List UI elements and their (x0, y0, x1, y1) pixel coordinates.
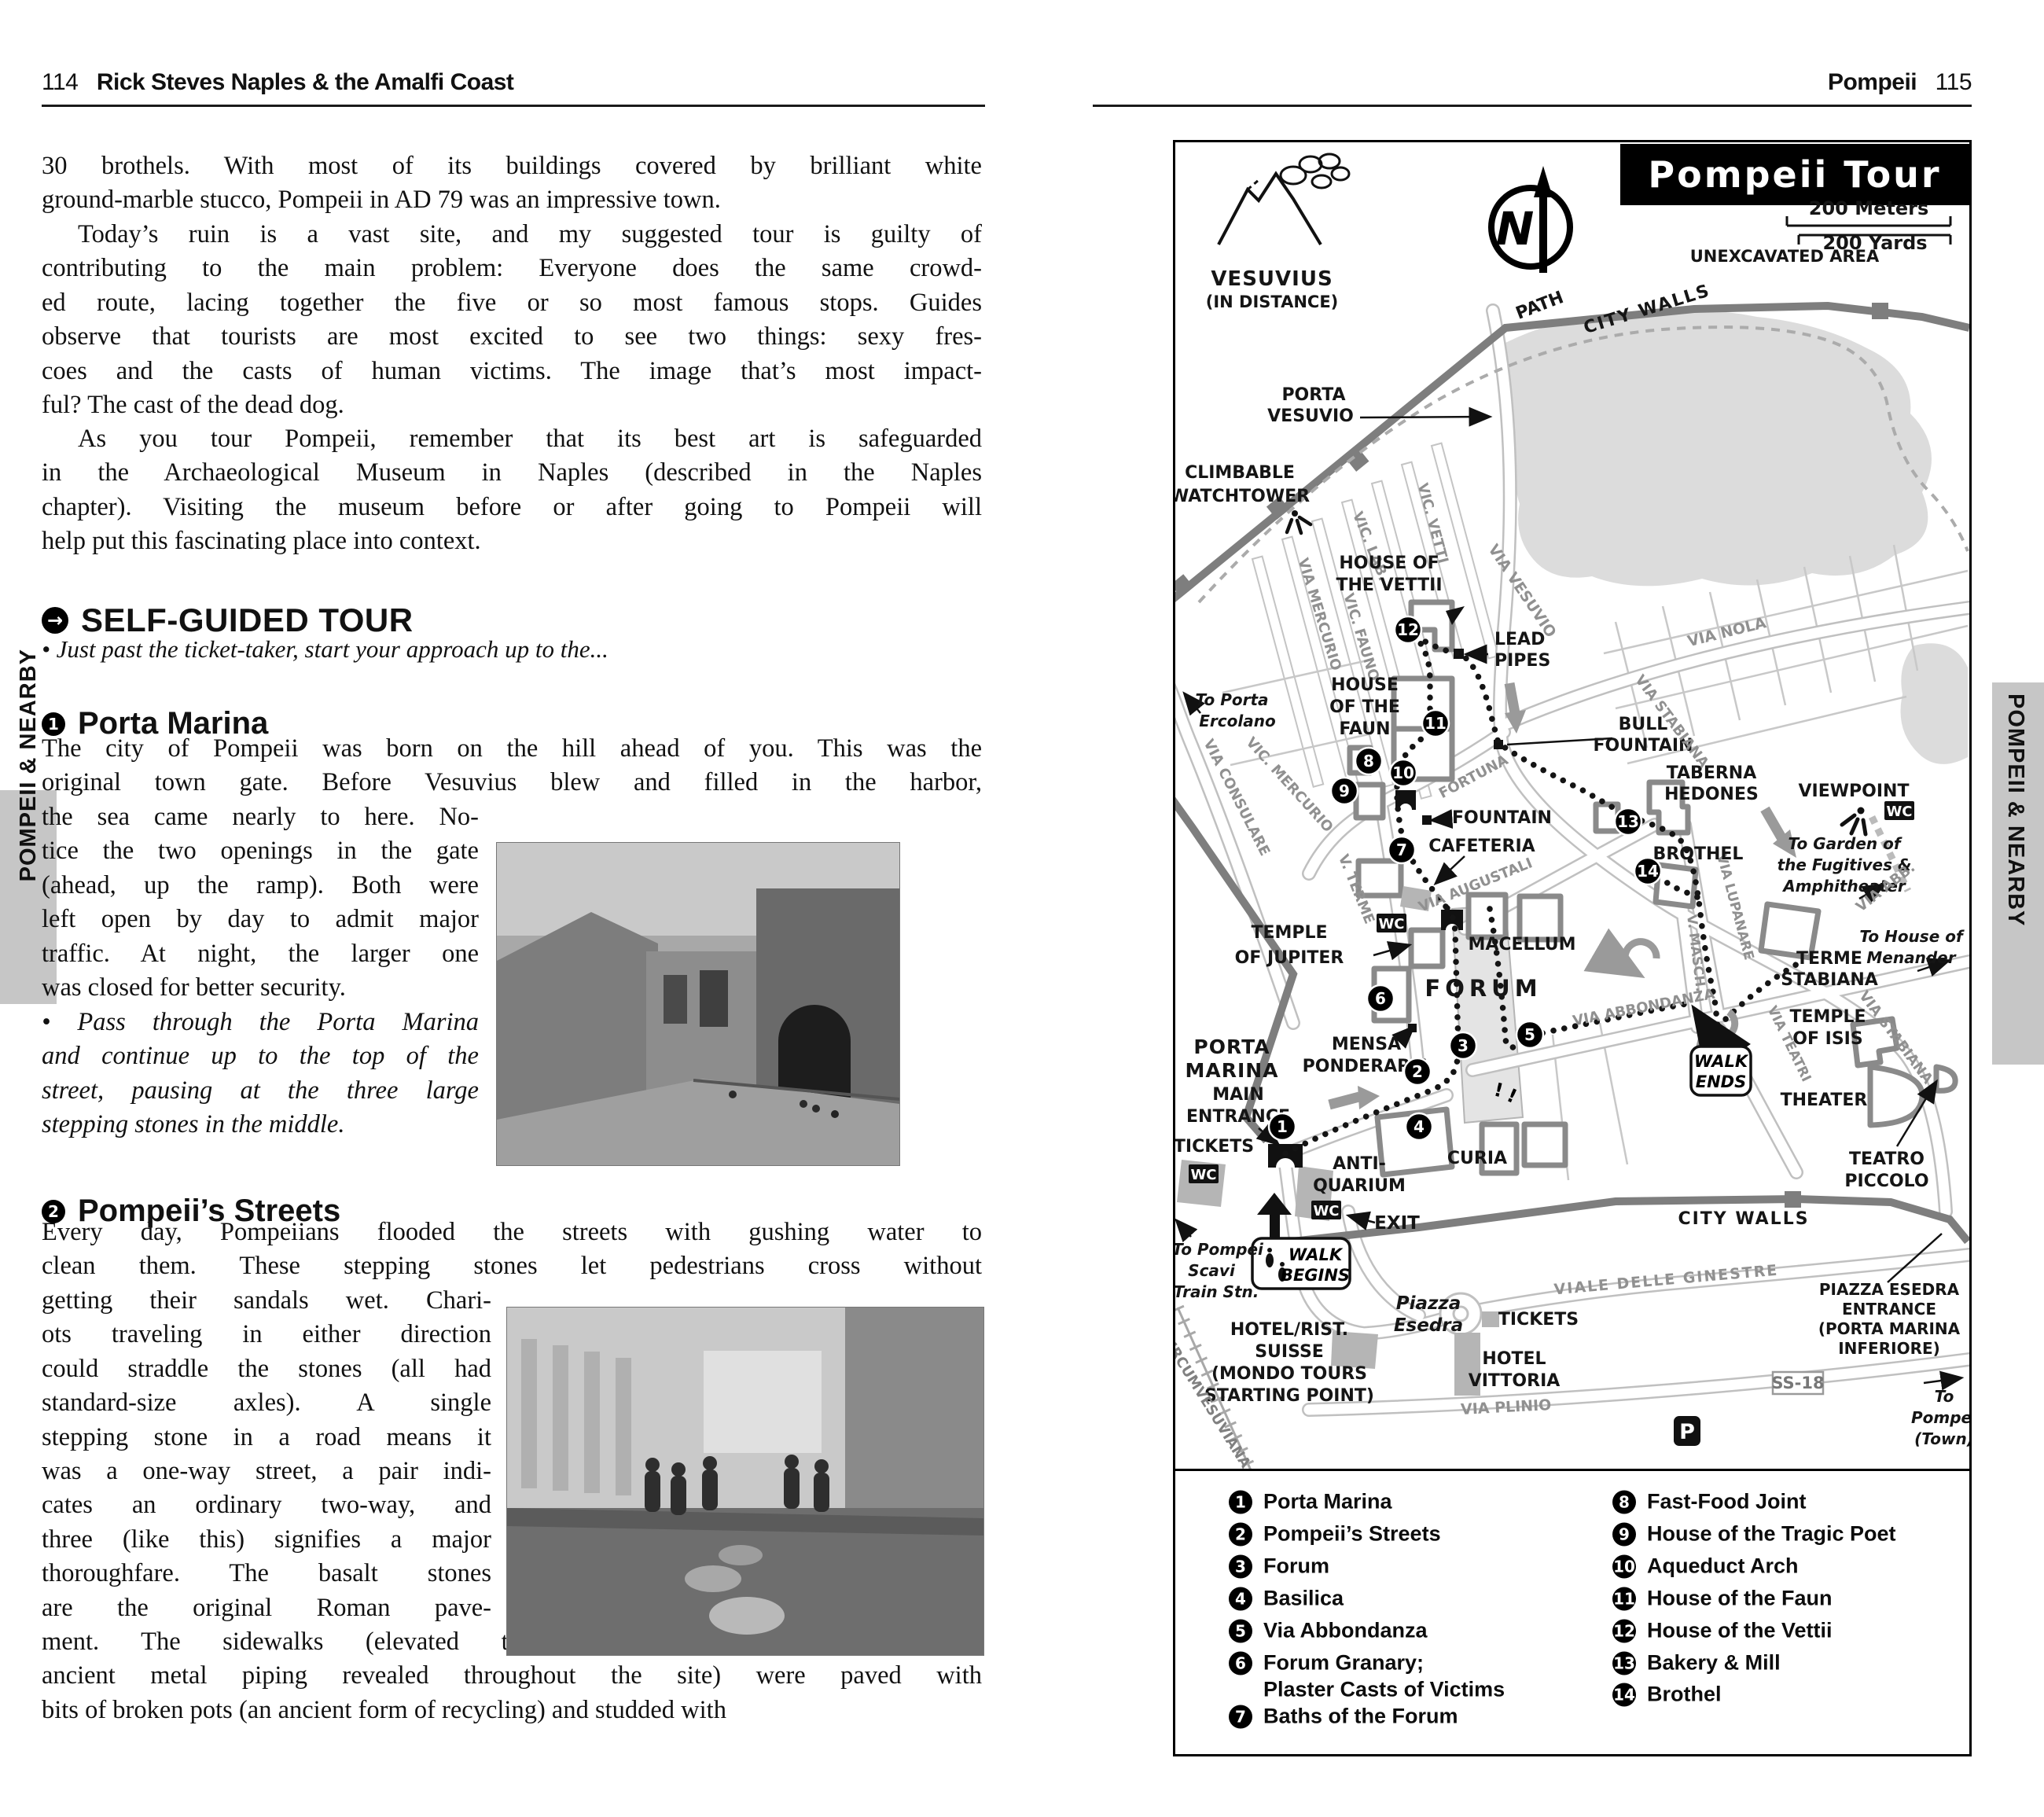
map-stop-badge-8: 8 (1355, 748, 1382, 774)
body-line: As you tour Pompeii, remember that its b… (42, 422, 982, 456)
body-line: could straddle the stones (all had (42, 1352, 491, 1386)
self-guided-tour-heading: → SELF-GUIDED TOUR (42, 601, 414, 639)
legend-number-badge: 9 (1612, 1522, 1636, 1546)
map-label: MENSA (1332, 1035, 1401, 1054)
legend-item-14: 14Brothel (1612, 1683, 1722, 1707)
body-line: original town gate. Before Vesuvius blew… (42, 766, 982, 800)
body-line: tice the two openings in the gate (42, 834, 479, 868)
legend-item-5: 5Via Abbondanza (1229, 1619, 1428, 1643)
body-line: ancient metal piping revealed throughout… (42, 1659, 982, 1693)
map-title: Pompeii Tour (1620, 144, 1969, 205)
map-stop-badge-11: 11 (1422, 710, 1449, 737)
map-label: PIPES (1494, 651, 1550, 671)
svg-text:10: 10 (1392, 763, 1414, 782)
map-label: TEMPLE (1251, 923, 1327, 943)
map-label: (IN DISTANCE) (1206, 292, 1339, 311)
map-label: OF THE (1329, 697, 1400, 717)
photo-stepping-stones-illustration (507, 1308, 983, 1655)
photo-porta-marina (497, 843, 899, 1165)
map-label: (Town) (1914, 1429, 1969, 1448)
svg-text:SS-18: SS-18 (1771, 1374, 1824, 1392)
map-label: ANTI- (1333, 1154, 1386, 1174)
svg-text:14: 14 (1637, 862, 1659, 881)
legend-label: Aqueduct Arch (1647, 1554, 1799, 1579)
map-label: VESUVIUS (1211, 267, 1333, 291)
svg-text:13: 13 (1617, 812, 1639, 831)
body-line: thoroughfare. The basalt stones (42, 1557, 491, 1591)
svg-text:WALK: WALK (1289, 1245, 1344, 1264)
map-label: Esedra (1394, 1315, 1463, 1336)
map-label: CURIA (1447, 1149, 1507, 1168)
body-line: Every day, Pompeiians flooded the street… (42, 1216, 982, 1249)
map-stop-badge-14: 14 (1634, 858, 1661, 885)
map-label: ENTRANCE (1842, 1300, 1936, 1319)
map-label: To Garden of (1788, 834, 1902, 853)
map-label: 200 Meters (1809, 197, 1928, 219)
right-page-number: 115 (1936, 69, 1972, 95)
map-label: Scavi (1188, 1261, 1236, 1280)
legend-label: Fast-Food Joint (1647, 1490, 1806, 1514)
legend-item-7: 7Baths of the Forum (1229, 1705, 1458, 1729)
map-label: PORTA (1193, 1035, 1270, 1058)
map-label: (MONDO TOURS (1211, 1364, 1367, 1384)
map-stop-badge-1: 1 (1269, 1113, 1296, 1140)
body-line: getting their sandals wet. Chari- (42, 1284, 491, 1318)
right-header-rule (1093, 105, 1972, 107)
fountain-marker (1422, 815, 1432, 825)
wc-badge: WC (1377, 914, 1406, 932)
body-line: left open by day to admit major (42, 903, 479, 936)
book-spread: 114 Rick Steves Naples & the Amalfi Coas… (0, 0, 2044, 1817)
map-label: Ercolano (1199, 712, 1276, 730)
legend-label: Baths of the Forum (1263, 1705, 1458, 1729)
svg-text:WC: WC (1886, 804, 1912, 820)
map-label: MACELLUM (1468, 935, 1575, 954)
paragraph: the sea came nearly to here. No-tice the… (42, 800, 479, 1005)
svg-text:P: P (1679, 1420, 1695, 1444)
legend-label: Basilica (1263, 1587, 1344, 1611)
photo-porta-marina-illustration (497, 843, 899, 1165)
legend-number-badge: 6 (1229, 1651, 1252, 1675)
svg-text:3: 3 (1458, 1036, 1469, 1055)
map-label: THEATER (1781, 1091, 1868, 1110)
body-line: bits of broken pots (an ancient form of … (42, 1694, 982, 1727)
map-label: WATCHTOWER (1175, 487, 1310, 506)
legend-item-9: 9House of the Tragic Poet (1612, 1522, 1896, 1547)
left-page-header: 114 Rick Steves Naples & the Amalfi Coas… (42, 69, 513, 96)
left-tab-label: POMPEII & NEARBY (16, 649, 42, 881)
map-stop-badge-12: 12 (1395, 616, 1421, 643)
body-line: clean them. These stepping stones let pe… (42, 1249, 982, 1283)
vesuvius-icon (1219, 154, 1349, 245)
svg-text:7: 7 (1396, 840, 1407, 859)
map-label: HOUSE OF (1339, 554, 1439, 573)
map-frame: ! ! (1173, 140, 1972, 1756)
map-label: Train Stn. (1175, 1282, 1259, 1301)
map-label: VIA PLINIO (1461, 1396, 1552, 1418)
legend-label: Forum Granary; (1263, 1651, 1424, 1675)
map-stop-badge-5: 5 (1516, 1021, 1543, 1048)
legend-label-line2: Plaster Casts of Victims (1263, 1678, 1505, 1702)
body-line: ground-marble stucco, Pompeii in AD 79 w… (42, 183, 982, 217)
legend-number-badge: 12 (1612, 1619, 1636, 1642)
map-label: TICKETS (1175, 1137, 1254, 1157)
legend-item-6: 6Forum Granary; (1229, 1651, 1424, 1675)
map-label: To House of (1859, 927, 1965, 946)
paragraph: getting their sandals wet. Chari-ots tra… (42, 1284, 491, 1625)
map-label: VIEWPOINT (1799, 782, 1910, 801)
legend-item-2: 2Pompeii’s Streets (1229, 1522, 1441, 1547)
body-line: observe that tourists are most excited t… (42, 320, 982, 354)
svg-text:1: 1 (1277, 1117, 1288, 1136)
right-page-header: Pompeii 115 (1093, 69, 1972, 96)
legend-item-4: 4Basilica (1229, 1587, 1344, 1611)
map-label: the Fugitives & (1777, 855, 1912, 874)
body-line: was closed for better security. (42, 971, 479, 1005)
left-page-number: 114 (42, 69, 78, 95)
svg-text:BEGINS: BEGINS (1281, 1266, 1350, 1285)
map-label: HOTEL (1482, 1349, 1546, 1369)
map-label: FORUM (1425, 975, 1542, 1002)
body-line: chapter). Visiting the museum before or … (42, 491, 982, 524)
legend-number-badge: 5 (1229, 1619, 1252, 1642)
wc-badge: WC (1189, 1164, 1219, 1183)
map-label: TICKETS (1498, 1310, 1579, 1330)
map-stop-badge-9: 9 (1331, 778, 1358, 804)
legend-label: Porta Marina (1263, 1490, 1392, 1514)
body-line: ed route, lacing together the five or so… (42, 286, 982, 320)
map-label: UNEXCAVATED AREA (1690, 247, 1880, 266)
map-stop-badge-13: 13 (1615, 808, 1641, 835)
map-label: Pompei (1911, 1408, 1969, 1427)
map-label: THE VETTII (1336, 576, 1442, 595)
svg-text:WALK: WALK (1694, 1052, 1749, 1071)
map-stop-badge-2: 2 (1404, 1058, 1431, 1085)
legend-label: Via Abbondanza (1263, 1619, 1428, 1643)
map-label: To (1935, 1387, 1954, 1406)
legend-number-badge: 7 (1229, 1705, 1252, 1728)
map-label: VESUVIO (1267, 406, 1354, 426)
body-line: in the Archaeological Museum in Naples (… (42, 456, 982, 490)
legend-number-badge: 13 (1612, 1651, 1636, 1675)
arrow-circle-icon: → (42, 607, 68, 634)
ss18-badge: SS-18 (1771, 1372, 1824, 1394)
map-label: LEAD (1494, 630, 1545, 649)
tour-heading-label: SELF-GUIDED TOUR (81, 601, 414, 639)
map-label: SUISSE (1255, 1342, 1324, 1362)
tour-intro: • Just past the ticket-taker, start your… (42, 635, 982, 664)
legend-item-12: 12House of the Vettii (1612, 1619, 1833, 1643)
right-tab-label: POMPEII & NEARBY (2002, 693, 2028, 926)
map-stop-badge-6: 6 (1367, 985, 1394, 1012)
svg-text:9: 9 (1339, 782, 1350, 800)
legend-item-8: 8Fast-Food Joint (1612, 1490, 1806, 1514)
map-label: MAIN (1212, 1085, 1264, 1105)
legend-item-3: 3Forum (1229, 1554, 1329, 1579)
map-label: PORTA (1281, 385, 1345, 405)
body-line: coes and the casts of human victims. The… (42, 355, 982, 388)
map-label: PIAZZA ESEDRA (1819, 1280, 1960, 1299)
legend-number-badge: 14 (1612, 1683, 1636, 1706)
body-line: the sea came nearly to here. No- (42, 800, 479, 834)
map-label: HEDONES (1664, 785, 1759, 804)
map-label: To Porta (1195, 690, 1268, 709)
map-label: TEMPLE (1789, 1007, 1866, 1027)
paragraph: 30 brothels. With most of its buildings … (42, 149, 982, 218)
legend-label: House of the Vettii (1647, 1619, 1833, 1643)
body-line: The city of Pompeii was born on the hill… (42, 732, 982, 766)
map-label: STABIANA (1781, 970, 1878, 990)
map-label: STARTING POINT) (1204, 1386, 1374, 1406)
map-label: MARINA (1185, 1059, 1278, 1082)
svg-text:2: 2 (1412, 1062, 1423, 1081)
body-line: was a one-way street, a pair indi- (42, 1455, 491, 1488)
svg-text:4: 4 (1414, 1117, 1425, 1136)
body-line: street, pausing at the three large (42, 1074, 479, 1108)
map-label: Piazza (1396, 1293, 1461, 1314)
svg-text:11: 11 (1425, 714, 1447, 733)
body-line: ful? The cast of the dead dog. (42, 388, 982, 422)
body-line: cates an ordinary two-way, and (42, 1488, 491, 1522)
map-label: INFERIORE) (1838, 1339, 1940, 1358)
walk-begins-box: WALK BEGINS (1252, 1238, 1350, 1289)
svg-text:WC: WC (1313, 1203, 1339, 1219)
map-label: TEATRO (1849, 1149, 1925, 1169)
map-label: HOUSE (1331, 675, 1399, 695)
left-header-rule (42, 105, 985, 107)
map-stop-badge-10: 10 (1390, 760, 1417, 786)
map-label: CAFETERIA (1428, 837, 1535, 856)
body-line: contributing to the main problem: Everyo… (42, 252, 982, 285)
body-line: 30 brothels. With most of its buildings … (42, 149, 982, 183)
legend-label: Bakery & Mill (1647, 1651, 1781, 1675)
walk-ends-box: WALK ENDS (1691, 1046, 1751, 1095)
map-stop-badge-7: 7 (1388, 837, 1415, 863)
right-header-title: Pompeii (1828, 69, 1917, 95)
map-label: CITY WALLS (1678, 1209, 1809, 1229)
legend-number-badge: 11 (1612, 1587, 1636, 1610)
map-label: (PORTA MARINA (1818, 1319, 1961, 1338)
body-line: help put this fascinating place into con… (42, 524, 982, 558)
map-label: FAUN (1339, 719, 1390, 739)
north-arrow-icon: N (1491, 166, 1570, 273)
map-label: VIALE DELLE GINESTRE (1553, 1262, 1779, 1299)
map-label: FOUNTAIN (1452, 808, 1552, 828)
legend-label: Pompeii’s Streets (1263, 1522, 1441, 1547)
wc-badge: WC (1311, 1201, 1341, 1219)
parking-badge: P (1674, 1416, 1700, 1446)
paragraph: The city of Pompeii was born on the hill… (42, 732, 982, 800)
map-stop-badge-3: 3 (1450, 1032, 1476, 1059)
map-label: TABERNA (1667, 763, 1757, 783)
legend-label: House of the Tragic Poet (1647, 1522, 1896, 1547)
map-label: PICCOLO (1844, 1171, 1928, 1191)
map-label: OF ISIS (1792, 1029, 1862, 1049)
right-tab: POMPEII & NEARBY (1987, 535, 2044, 1085)
left-header-title: Rick Steves Naples & the Amalfi Coast (97, 69, 514, 95)
svg-text:Pompeii Tour: Pompeii Tour (1648, 153, 1941, 196)
map-label: PATH (1513, 288, 1567, 324)
paragraph: Today’s ruin is a vast site, and my sugg… (42, 218, 982, 422)
svg-text:6: 6 (1375, 989, 1386, 1008)
paragraph: Every day, Pompeiians flooded the street… (42, 1216, 982, 1284)
body-line: are the original Roman pave- (42, 1591, 491, 1625)
wc-badge: WC (1884, 801, 1914, 820)
legend-item-13: 13Bakery & Mill (1612, 1651, 1781, 1675)
svg-text:WC: WC (1190, 1167, 1216, 1183)
legend-number-badge: 10 (1612, 1554, 1636, 1578)
svg-text:5: 5 (1524, 1025, 1535, 1044)
map-label: VITTORIA (1469, 1371, 1561, 1391)
body-line: traffic. At night, the larger one (42, 937, 479, 971)
legend-label: Brothel (1647, 1683, 1722, 1707)
body-line: Today’s ruin is a vast site, and my sugg… (42, 218, 982, 252)
legend-item-10: 10Aqueduct Arch (1612, 1554, 1799, 1579)
svg-text:12: 12 (1397, 620, 1419, 639)
body-line: • Pass through the Porta Marina (42, 1006, 479, 1039)
body-line: ots traveling in either direction (42, 1318, 491, 1352)
body-line: stepping stone in a road means it (42, 1421, 491, 1455)
svg-text:ENDS: ENDS (1696, 1072, 1746, 1091)
map-label: TERME (1796, 949, 1862, 969)
legend-item-1: 1Porta Marina (1229, 1490, 1392, 1514)
svg-text:N: N (1496, 202, 1535, 256)
map-label: QUARIUM (1313, 1176, 1406, 1196)
body-line: (ahead, up the ramp). Both were (42, 869, 479, 903)
map-label: Menander (1866, 948, 1956, 967)
paragraph: As you tour Pompeii, remember that its b… (42, 422, 982, 559)
watchtower-icon (1287, 510, 1311, 533)
map-label: OF JUPITER (1235, 948, 1344, 968)
map-label: BROTHEL (1653, 844, 1744, 864)
map-label: CLIMBABLE (1185, 463, 1295, 483)
body-line: and continue up to the top of the (42, 1039, 479, 1073)
body-line: three (like this) signifies a major (42, 1523, 491, 1557)
paragraph-italic: • Pass through the Porta Marinaand conti… (42, 1006, 479, 1142)
svg-text:WC: WC (1378, 916, 1404, 932)
legend-item-11: 11House of the Faun (1612, 1587, 1833, 1611)
legend-number-badge: 4 (1229, 1587, 1252, 1610)
legend-number-badge: 8 (1612, 1490, 1636, 1514)
legend-number-badge: 1 (1229, 1490, 1252, 1514)
legend-label: Forum (1263, 1554, 1329, 1579)
legend-label: House of the Faun (1647, 1587, 1833, 1611)
body-line: stepping stones in the middle. (42, 1108, 479, 1142)
map-stop-badge-4: 4 (1406, 1113, 1432, 1140)
viewpoint-icon (1842, 807, 1866, 835)
body-line: standard-size axles). A single (42, 1386, 491, 1420)
legend-number-badge: 2 (1229, 1522, 1252, 1546)
pompeii-tour-map: ! ! (1175, 142, 1969, 1469)
svg-text:8: 8 (1363, 752, 1374, 771)
photo-stepping-stones (507, 1308, 983, 1655)
map-label: To Pompei (1175, 1240, 1264, 1259)
map-legend: 1Porta Marina2Pompeii’s Streets3Forum4Ba… (1175, 1469, 1969, 1756)
legend-number-badge: 3 (1229, 1554, 1252, 1578)
map-label: HOTEL/RIST. (1230, 1320, 1348, 1340)
map-label: EXIT (1374, 1213, 1420, 1234)
